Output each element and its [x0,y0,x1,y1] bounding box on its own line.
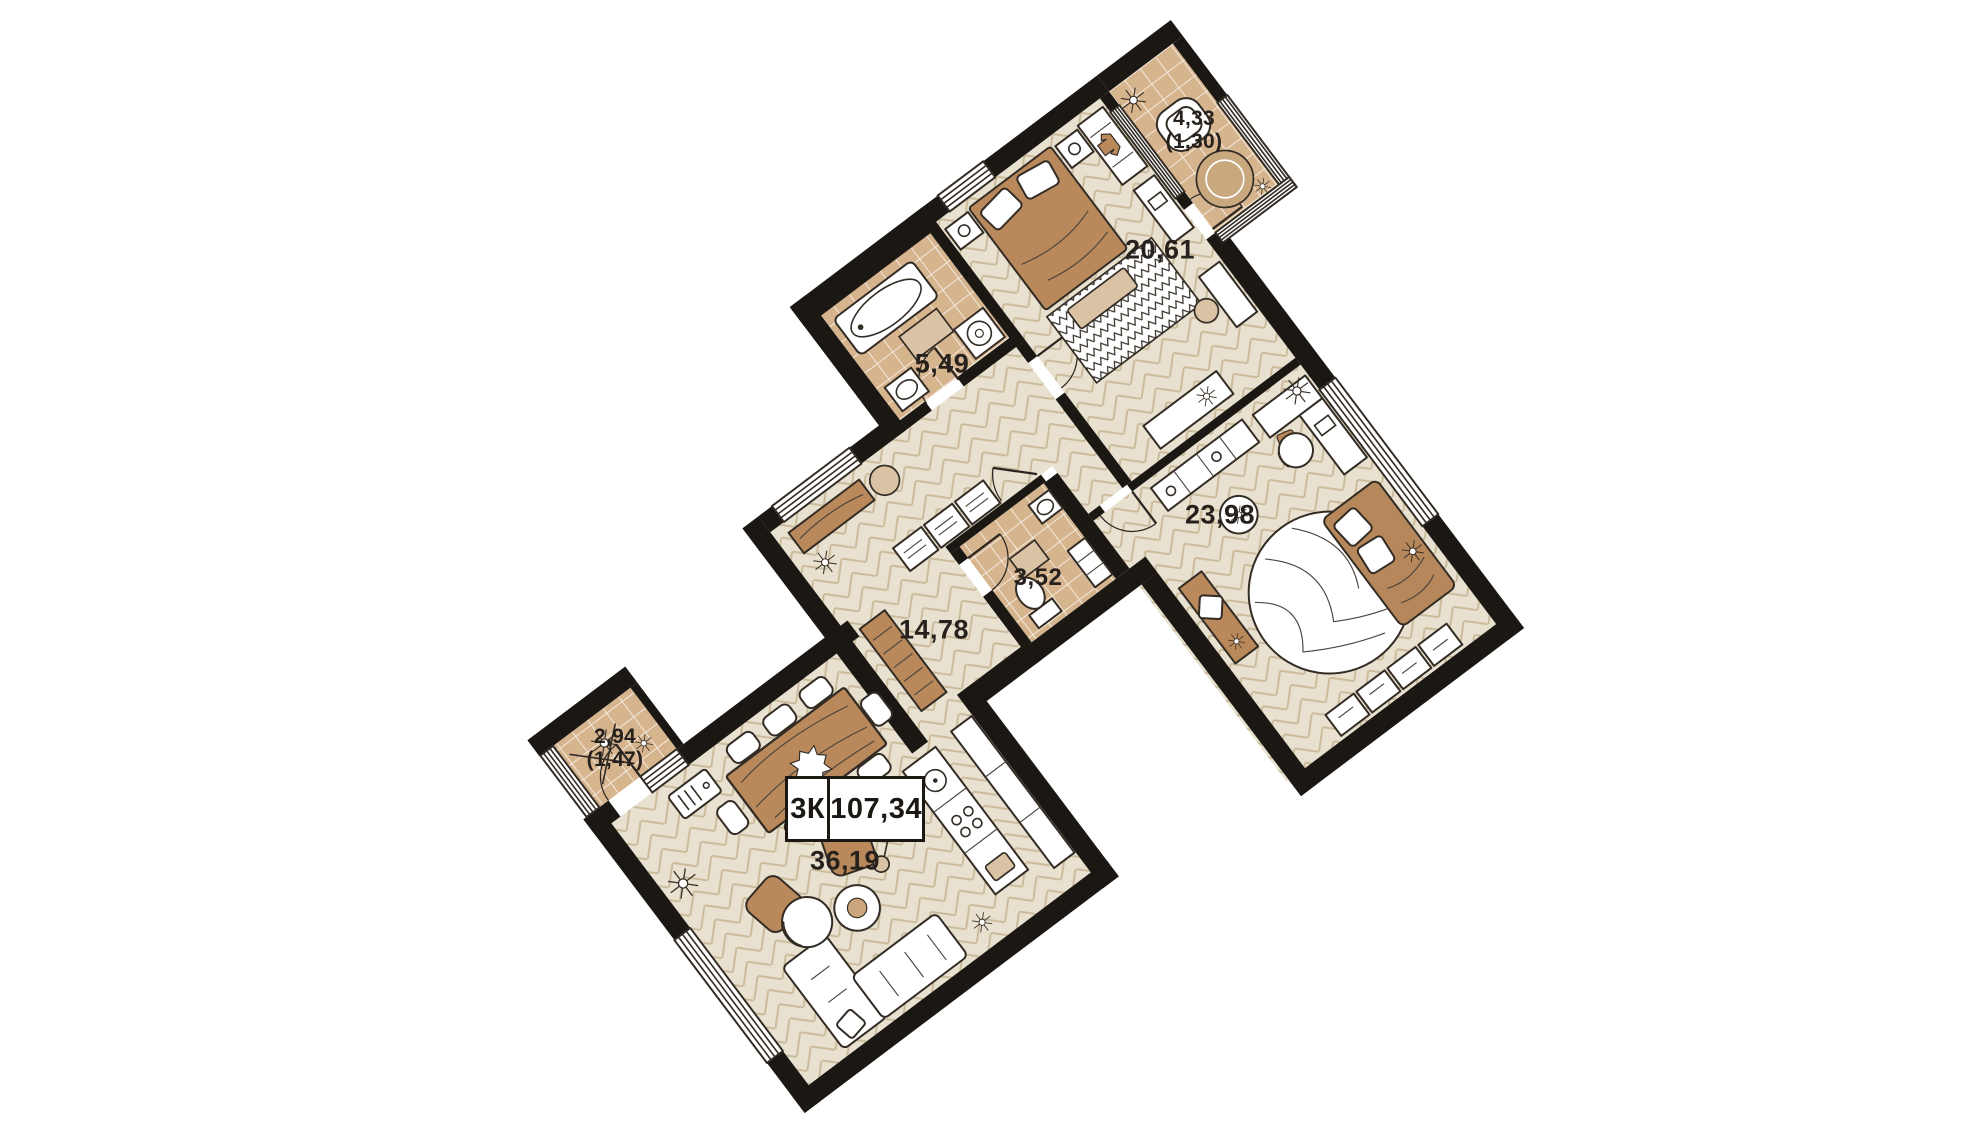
area-label-wc: 3,52 [1014,564,1063,592]
area-reduced-value: (1,47) [587,748,644,771]
area-label-balcony-ne: 4,33 (1,30) [1166,107,1223,153]
area-value: 5,49 [915,349,970,379]
area-reduced-value: (1,30) [1166,130,1223,153]
floor-plan-screenshot: 4,33 (1,30) 20,61 5,49 23,98 14,78 3,52 … [0,0,1980,1143]
area-value: 3,52 [1014,564,1063,591]
area-value: 20,61 [1125,235,1195,265]
total-area-value: 107,34 [830,779,922,839]
area-label-bedroom: 20,61 [1125,235,1195,266]
area-label-balcony-w: 2,94 (1,47) [587,725,644,771]
area-label-study: 23,98 [1185,500,1255,531]
area-value: 23,98 [1185,500,1255,530]
rooms-type-value: 3К [788,779,830,839]
area-value: 14,78 [899,615,969,645]
area-label-hallway: 14,78 [899,615,969,646]
floor-plan-drawing [0,0,1980,1143]
area-value: 4,33 [1173,107,1215,130]
area-label-kitchen-living: 36,19 [810,846,880,877]
area-value: 36,19 [810,846,880,876]
area-value: 2,94 [594,725,636,748]
apartment-summary-badge: 3К 107,34 [785,776,925,842]
area-label-bathroom: 5,49 [915,349,970,380]
